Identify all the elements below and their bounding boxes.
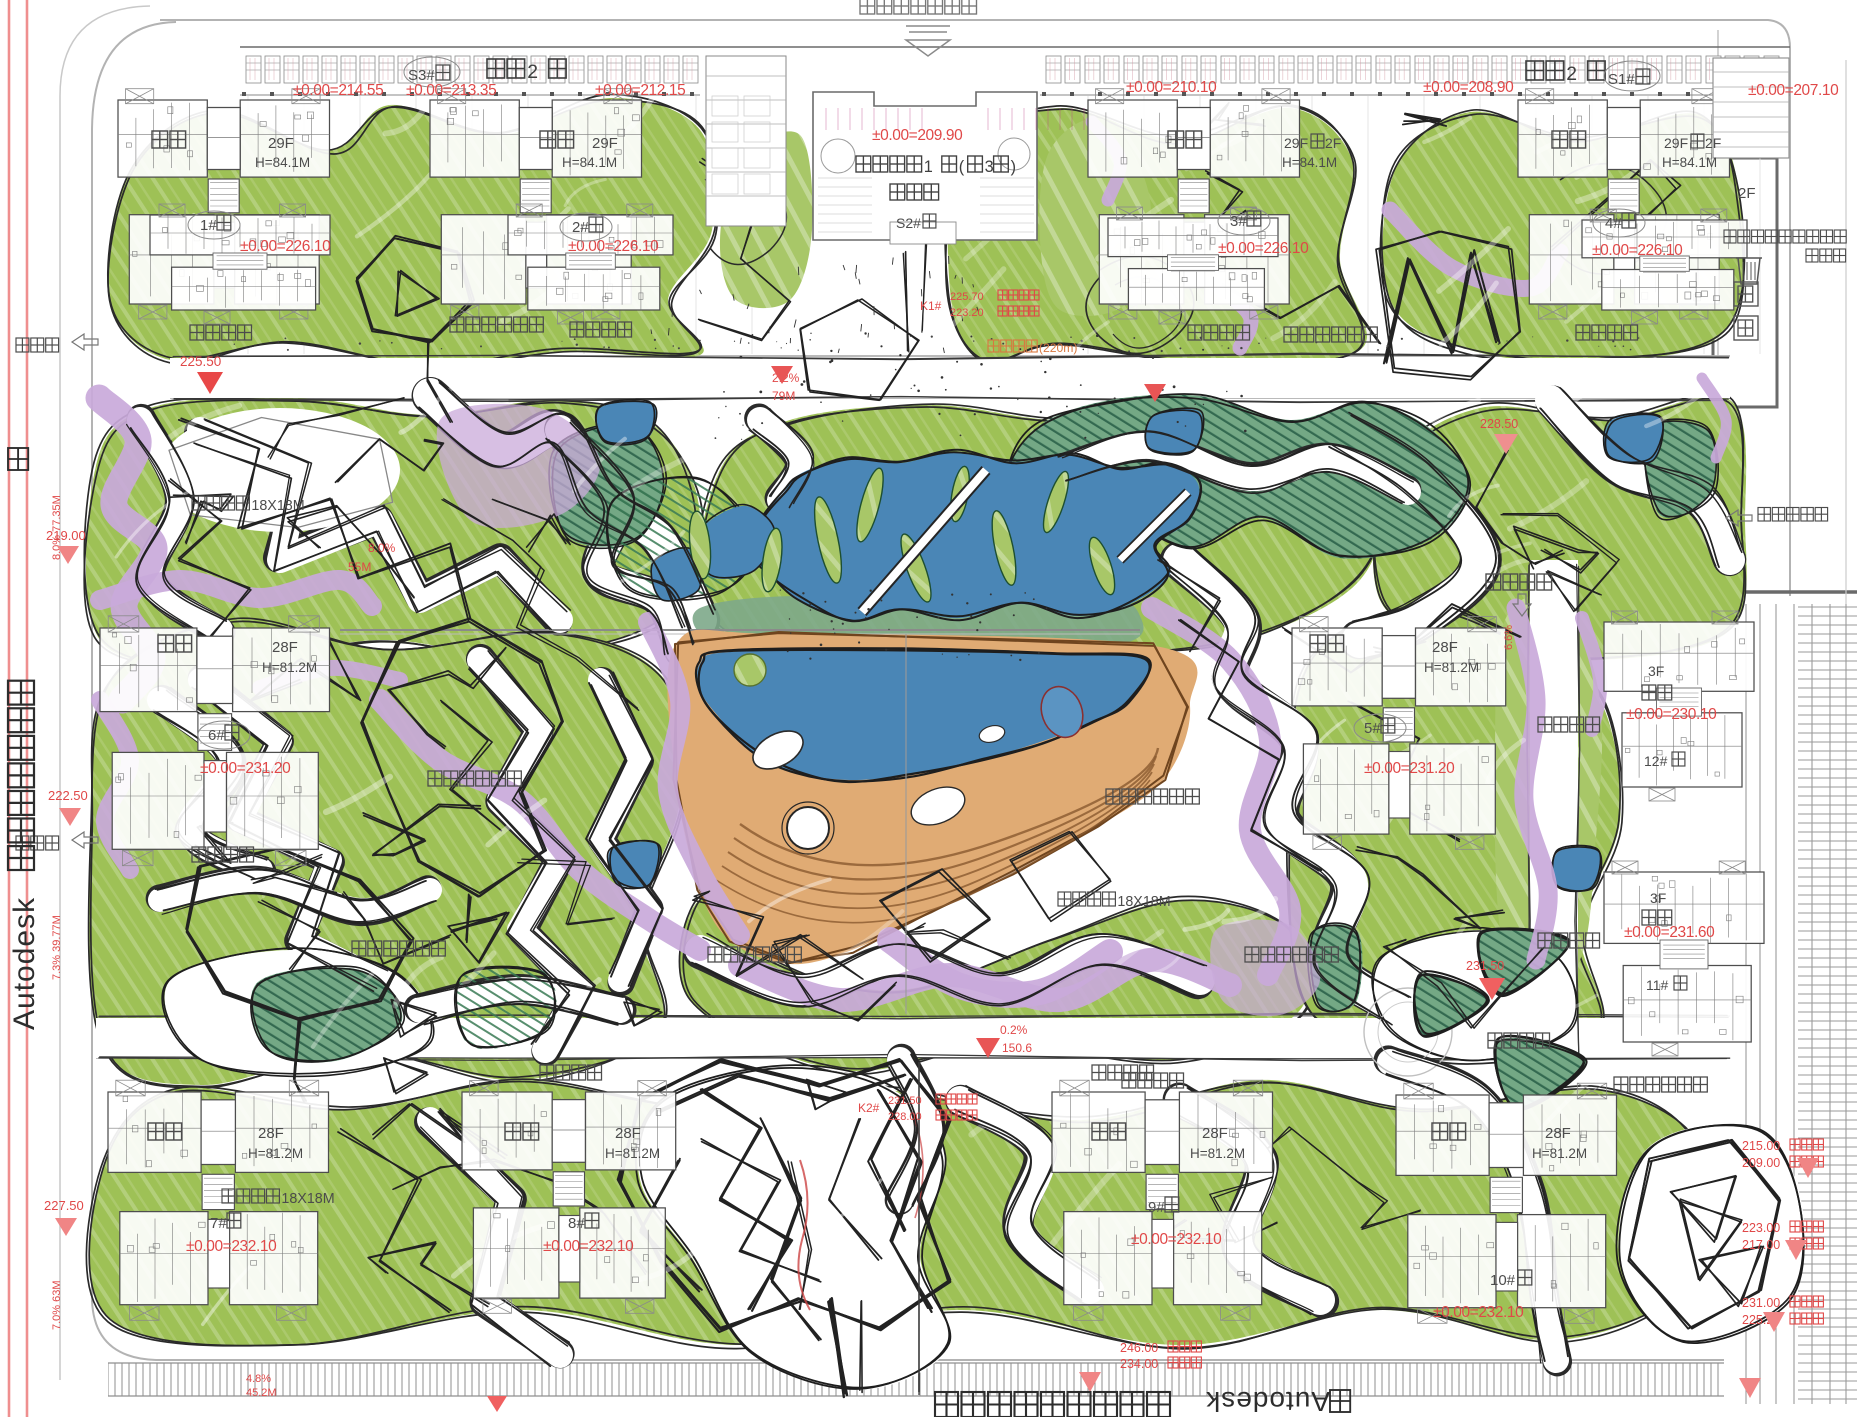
svg-text:±0.00=212.15: ±0.00=212.15 xyxy=(595,82,685,99)
svg-text:18X18M: 18X18M xyxy=(251,498,304,514)
svg-text:6.6%: 6.6% xyxy=(1503,625,1515,650)
svg-text:7.0% 63M: 7.0% 63M xyxy=(51,1280,63,1330)
svg-text:±0.00=209.90: ±0.00=209.90 xyxy=(872,127,963,144)
svg-text:28F: 28F xyxy=(615,1125,641,1142)
svg-text:246.00: 246.00 xyxy=(1120,1341,1158,1355)
svg-text:223.00: 223.00 xyxy=(1742,1221,1780,1235)
svg-text:3F: 3F xyxy=(1650,890,1666,906)
svg-text:0.2%: 0.2% xyxy=(1000,1023,1028,1037)
svg-text:±0.00=230.10: ±0.00=230.10 xyxy=(1626,706,1717,723)
svg-text:Autodesk: Autodesk xyxy=(8,897,41,1030)
svg-text:6#: 6# xyxy=(208,727,225,744)
svg-text:2#: 2# xyxy=(572,219,589,236)
svg-text:±0.00=232.10: ±0.00=232.10 xyxy=(186,1238,277,1255)
svg-text:±0.00=232.10: ±0.00=232.10 xyxy=(543,1238,634,1255)
svg-text:H=81.2M: H=81.2M xyxy=(1424,660,1479,675)
svg-text:1#: 1# xyxy=(200,217,217,234)
svg-text:H=81.2M: H=81.2M xyxy=(605,1146,660,1161)
svg-text:11#: 11# xyxy=(1646,977,1669,993)
svg-text:3: 3 xyxy=(985,158,994,176)
svg-text:222.50: 222.50 xyxy=(48,788,88,803)
svg-text:±0.00=207.10: ±0.00=207.10 xyxy=(1748,82,1839,99)
svg-text:2: 2 xyxy=(527,61,538,83)
svg-text:H=84.1M: H=84.1M xyxy=(562,155,617,170)
svg-text:): ) xyxy=(1011,158,1016,176)
svg-text:H=81.2M: H=81.2M xyxy=(262,660,317,675)
svg-text:29F: 29F xyxy=(268,135,294,152)
svg-text:±0.00=231.60: ±0.00=231.60 xyxy=(1624,924,1715,941)
svg-text:228.50: 228.50 xyxy=(1480,417,1518,431)
svg-text:29F: 29F xyxy=(1284,135,1308,151)
svg-text:4#: 4# xyxy=(1605,215,1622,232)
svg-text:±0.00=232.10: ±0.00=232.10 xyxy=(1131,1231,1222,1248)
svg-text:2: 2 xyxy=(1566,63,1577,85)
svg-text:209.00: 209.00 xyxy=(1742,1156,1780,1170)
svg-text:±0.00=226.10: ±0.00=226.10 xyxy=(1218,240,1309,257)
svg-text:1: 1 xyxy=(924,158,933,176)
svg-text:2F: 2F xyxy=(1738,185,1756,202)
svg-text:227.50: 227.50 xyxy=(44,1198,84,1213)
svg-text:5#: 5# xyxy=(1364,720,1381,737)
svg-text:29F: 29F xyxy=(592,135,618,152)
svg-text:45.2M: 45.2M xyxy=(246,1387,277,1399)
svg-text:3#: 3# xyxy=(1230,213,1247,230)
svg-text:28F: 28F xyxy=(272,639,298,656)
svg-text:S2#: S2# xyxy=(896,215,921,231)
svg-text:234.00: 234.00 xyxy=(1120,1357,1158,1371)
svg-text:7.3% 39.77M: 7.3% 39.77M xyxy=(51,915,63,980)
svg-text:28F: 28F xyxy=(1202,1125,1228,1142)
svg-text:±0.00=232.10: ±0.00=232.10 xyxy=(1433,1304,1524,1321)
svg-text:55M: 55M xyxy=(348,560,371,574)
svg-text:215.00: 215.00 xyxy=(1742,1139,1780,1153)
svg-text:±0.00=214.55: ±0.00=214.55 xyxy=(293,82,383,99)
svg-text:2F: 2F xyxy=(1705,135,1721,151)
svg-text:±0.00=231.20: ±0.00=231.20 xyxy=(200,760,291,777)
svg-text:S1#: S1# xyxy=(1608,71,1635,88)
svg-text:8#: 8# xyxy=(568,1215,585,1232)
svg-text:228.00: 228.00 xyxy=(888,1111,922,1123)
svg-text:225.70: 225.70 xyxy=(950,291,984,303)
svg-text:7#: 7# xyxy=(210,1215,227,1232)
svg-text:18X18M: 18X18M xyxy=(1117,894,1170,910)
svg-text:10#: 10# xyxy=(1490,1272,1516,1289)
svg-text:231.50: 231.50 xyxy=(1466,959,1504,973)
svg-text:29F: 29F xyxy=(1664,135,1688,151)
svg-text:18X18M: 18X18M xyxy=(281,1191,334,1207)
svg-text:H=81.2M: H=81.2M xyxy=(1532,1146,1587,1161)
svg-text:±0.00=210.10: ±0.00=210.10 xyxy=(1126,79,1217,96)
svg-text:(: ( xyxy=(959,158,965,176)
svg-text:K1#: K1# xyxy=(920,299,942,313)
svg-text:223.20: 223.20 xyxy=(950,307,984,319)
svg-text:±0.00=231.20: ±0.00=231.20 xyxy=(1364,760,1455,777)
svg-text:±0.00=213.35: ±0.00=213.35 xyxy=(406,82,496,99)
svg-text:219.00: 219.00 xyxy=(46,528,86,543)
svg-text:H=84.1M: H=84.1M xyxy=(255,155,310,170)
svg-text:(220m): (220m) xyxy=(1039,341,1078,355)
svg-text:Autodesk: Autodesk xyxy=(1205,1386,1330,1417)
svg-text:H=81.2M: H=81.2M xyxy=(1190,1146,1245,1161)
svg-text:9#: 9# xyxy=(1148,1199,1165,1216)
svg-text:±0.00=226.10: ±0.00=226.10 xyxy=(240,238,331,255)
svg-text:K2#: K2# xyxy=(858,1101,880,1115)
svg-text:3F: 3F xyxy=(1648,663,1664,679)
svg-text:231.50: 231.50 xyxy=(888,1095,922,1107)
svg-text:225.50: 225.50 xyxy=(180,354,221,369)
svg-text:28F: 28F xyxy=(1432,639,1458,656)
svg-text:12#: 12# xyxy=(1644,753,1668,769)
svg-text:28F: 28F xyxy=(258,1125,284,1142)
svg-text:2F: 2F xyxy=(1325,135,1341,151)
svg-text:H=84.1M: H=84.1M xyxy=(1282,155,1337,170)
svg-text:±0.00=226.10: ±0.00=226.10 xyxy=(1592,242,1683,259)
svg-text:±0.00=208.90: ±0.00=208.90 xyxy=(1423,79,1514,96)
svg-text:150.6: 150.6 xyxy=(1002,1041,1032,1055)
svg-text:4.8%: 4.8% xyxy=(246,1373,271,1385)
svg-text:H=84.1M: H=84.1M xyxy=(1662,155,1717,170)
svg-text:8.0%: 8.0% xyxy=(368,541,396,555)
svg-text:H=81.2M: H=81.2M xyxy=(248,1146,303,1161)
svg-text:79M: 79M xyxy=(772,389,795,403)
svg-text:231.00: 231.00 xyxy=(1742,1296,1780,1310)
svg-text:217.00: 217.00 xyxy=(1742,1238,1780,1252)
svg-text:28F: 28F xyxy=(1545,1125,1571,1142)
